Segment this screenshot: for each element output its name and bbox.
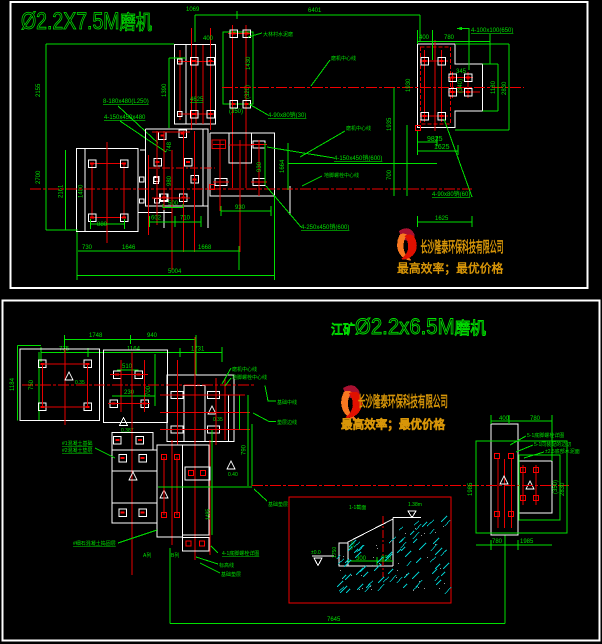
svg-text:8-180x480(L250): 8-180x480(L250): [103, 99, 149, 105]
svg-text:700: 700: [146, 385, 152, 396]
svg-text:400: 400: [499, 416, 510, 422]
svg-text:最高效率；最优价格: 最高效率；最优价格: [341, 417, 445, 431]
svg-text:1748: 1748: [89, 333, 103, 339]
svg-text:(350): (350): [553, 480, 559, 494]
svg-text:2155: 2155: [36, 83, 42, 97]
svg-text:长沙隆泰环保科技有限公司: 长沙隆泰环保科技有限公司: [358, 393, 448, 411]
svg-text:磨机中心线: 磨机中心线: [331, 55, 356, 62]
svg-text:790: 790: [242, 444, 248, 455]
svg-text:748: 748: [167, 141, 173, 152]
svg-text:大林村水泥磨: 大林村水泥磨: [263, 31, 293, 38]
svg-text:1668: 1668: [198, 245, 212, 251]
svg-text:1180: 1180: [491, 80, 497, 94]
svg-text:710: 710: [180, 216, 191, 222]
svg-text:780: 780: [444, 35, 455, 41]
svg-text:最高效率；最优价格: 最高效率；最优价格: [397, 261, 504, 275]
svg-text:0.35: 0.35: [213, 417, 223, 423]
svg-text:980: 980: [167, 175, 173, 186]
svg-text:4-90x80销(60): 4-90x80销(60): [432, 190, 470, 198]
svg-text:1-1截面: 1-1截面: [349, 504, 366, 511]
svg-text:730: 730: [82, 245, 93, 251]
svg-text:基础垫层: 基础垫层: [268, 501, 288, 508]
svg-text:5-1底脚螺栓详图: 5-1底脚螺栓详图: [527, 432, 564, 439]
svg-text:2700: 2700: [36, 170, 42, 184]
svg-text:400: 400: [419, 35, 430, 41]
svg-text:A列: A列: [143, 552, 151, 559]
svg-text:标高线: 标高线: [219, 562, 234, 569]
svg-text:700: 700: [387, 169, 393, 180]
svg-text:4-150x450销(600): 4-150x450销(600): [334, 154, 382, 162]
svg-text:1935: 1935: [387, 117, 393, 131]
svg-text:1495: 1495: [206, 509, 212, 520]
svg-text:1664: 1664: [280, 159, 286, 173]
svg-text:1985: 1985: [520, 539, 534, 545]
svg-text:780: 780: [530, 416, 541, 422]
svg-text:1069: 1069: [186, 7, 200, 13]
svg-text:1625: 1625: [434, 144, 450, 151]
svg-text:±2.5底部水泥面: ±2.5底部水泥面: [545, 448, 580, 455]
svg-text:9825: 9825: [427, 136, 443, 143]
svg-text:880: 880: [97, 222, 108, 228]
svg-text:基础中线: 基础中线: [277, 399, 297, 406]
svg-text:1731: 1731: [191, 347, 205, 353]
svg-text:磨机中心线: 磨机中心线: [232, 366, 257, 373]
svg-text:930: 930: [235, 205, 246, 211]
svg-text:#细石混凝土捣固层: #细石混凝土捣固层: [73, 540, 116, 547]
svg-text:345: 345: [456, 69, 467, 75]
svg-text:4-1底脚螺栓详图: 4-1底脚螺栓详图: [222, 550, 259, 557]
svg-text:780: 780: [492, 539, 503, 545]
svg-text:510: 510: [122, 364, 133, 370]
svg-text:300: 300: [356, 556, 367, 562]
svg-text:基础垫层: 基础垫层: [221, 571, 241, 578]
svg-text:6401: 6401: [308, 8, 322, 14]
svg-text:地脚螺栓中心线: 地脚螺栓中心线: [324, 172, 359, 179]
svg-text:4-250x450销(600): 4-250x450销(600): [301, 223, 349, 231]
svg-text:930: 930: [257, 161, 263, 172]
svg-text:磨机中心线: 磨机中心线: [346, 125, 371, 132]
svg-text:#1混凝土基础: #1混凝土基础: [62, 440, 93, 447]
svg-text:1930: 1930: [406, 78, 412, 92]
svg-text:230: 230: [124, 390, 135, 396]
svg-text:1184: 1184: [10, 377, 16, 391]
svg-text:602: 602: [151, 216, 162, 222]
svg-text:1390: 1390: [162, 83, 168, 97]
svg-text:940: 940: [147, 333, 158, 339]
svg-text:1.38m: 1.38m: [408, 502, 422, 508]
svg-text:1985: 1985: [468, 482, 474, 496]
svg-text:Ø2.2X7.5M磨机: Ø2.2X7.5M磨机: [21, 8, 152, 35]
svg-text:4625: 4625: [190, 97, 204, 103]
svg-text:±0.0: ±0.0: [311, 550, 321, 556]
svg-text:500: 500: [168, 201, 179, 207]
svg-text:(340): (340): [458, 79, 464, 93]
svg-text:垫层边线: 垫层边线: [277, 419, 297, 426]
svg-text:2830: 2830: [502, 81, 508, 95]
svg-text:1646: 1646: [122, 245, 136, 251]
svg-text:4-100x100(650): 4-100x100(650): [471, 28, 513, 34]
svg-text:1430: 1430: [246, 56, 252, 70]
svg-text:5-1同装配的边切: 5-1同装配的边切: [534, 441, 571, 448]
svg-text:4-150x450x480: 4-150x450x480: [104, 115, 146, 121]
svg-text:2161: 2161: [59, 184, 65, 198]
svg-text:5004: 5004: [168, 269, 182, 275]
svg-text:地脚螺栓中心线: 地脚螺栓中心线: [232, 374, 267, 381]
svg-text:1400: 1400: [79, 184, 85, 198]
svg-text:(350): (350): [229, 109, 243, 115]
svg-text:0.40: 0.40: [228, 472, 238, 478]
svg-text:2830: 2830: [560, 482, 566, 496]
svg-text:#2混凝土垫层: #2混凝土垫层: [62, 447, 93, 454]
svg-text:长沙隆泰环保科技有限公司: 长沙隆泰环保科技有限公司: [421, 238, 504, 256]
svg-text:7645: 7645: [327, 617, 341, 623]
svg-text:B列: B列: [171, 552, 179, 559]
svg-text:1625: 1625: [435, 216, 449, 222]
svg-text:1750: 1750: [332, 547, 338, 558]
svg-text:400: 400: [203, 36, 214, 42]
svg-text:4-90x80销(30): 4-90x80销(30): [268, 111, 306, 119]
